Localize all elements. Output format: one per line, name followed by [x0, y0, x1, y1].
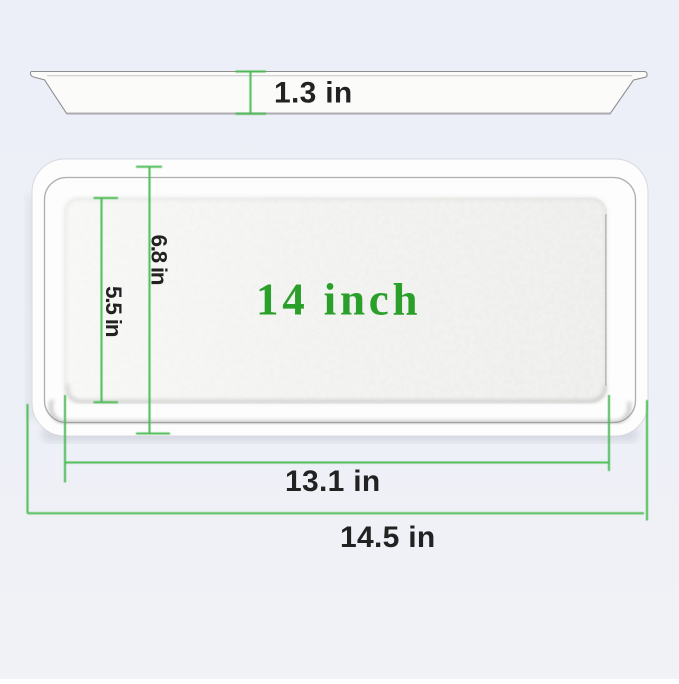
- svg-text:1.3 in: 1.3 in: [274, 77, 353, 110]
- svg-text:14.5 in: 14.5 in: [340, 521, 435, 554]
- svg-text:6.8 in: 6.8 in: [147, 235, 172, 285]
- svg-text:14 inch: 14 inch: [256, 275, 421, 325]
- svg-text:13.1 in: 13.1 in: [285, 465, 380, 498]
- svg-text:5.5 in: 5.5 in: [101, 286, 126, 337]
